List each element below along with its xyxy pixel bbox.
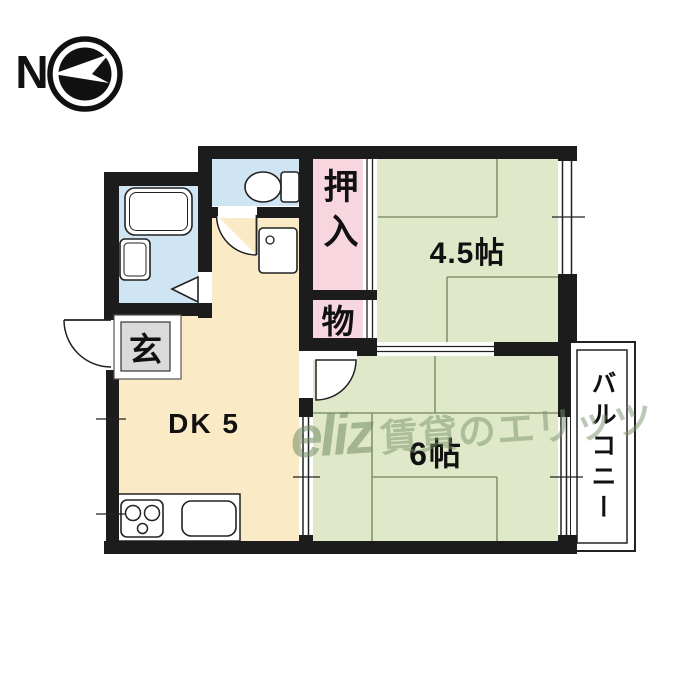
room-label-balcony: バルコニー [577,351,627,543]
floor-plan-drawing [0,0,700,700]
stove-burner [138,524,148,534]
fusuma-45-6 [377,342,494,356]
window-dk-6 [299,417,313,535]
wall-divider-mid [299,398,313,417]
wall-right-mid [558,274,577,342]
room-label-45jo: 4.5帖 [377,232,558,268]
fusuma-oshiire [363,159,377,290]
washbasin-faucet [266,236,274,244]
wall-toilet-bottom-right [257,207,299,218]
wall-top [202,146,577,159]
wall-left-upper [104,172,119,320]
fusuma-storage [363,300,377,338]
wall-bottom [104,541,577,554]
window-6-right [558,417,570,535]
wall-bath-right-lower [198,303,212,318]
toilet-tank [281,172,299,202]
kitchen-sink-icon [182,501,236,536]
room-label-genkan: 玄 [121,322,170,371]
room-label-storage: 物 [313,299,363,339]
bathtub-icon [125,188,192,235]
washbasin-icon [259,228,297,273]
wall-junction-block [357,338,377,356]
wall-divider-upper [299,146,313,351]
toilet-door-opening [218,207,257,218]
room-label-oshiire: 押入 [313,166,363,288]
compass [50,39,120,109]
wall-bath-bottom [104,303,212,316]
wall-right-bottom [558,535,577,554]
toilet-bowl-icon [245,172,281,202]
wall-right-mid2 [558,342,570,417]
compass-north-label: N [10,44,54,100]
stove-burner [126,506,141,521]
bath-door-opening [198,272,212,303]
wall-45-6 [494,342,560,356]
stove-burner [145,506,160,521]
wall-bath-right-upper [198,146,212,272]
wall-right-top [558,146,577,161]
wall-divider-bottom [299,535,313,554]
wall-bath-top [104,172,212,186]
room-label-dk: DK 5 [144,406,264,442]
room-label-6jo: 6帖 [336,433,536,471]
floor-plan-canvas: N 4.5帖 6帖 DK 5 押入 物 玄 バルコニー eliz 賃貸のエリッツ [0,0,700,700]
wall-left-lower [106,370,119,554]
washitsu-6-door-opening2 [299,351,313,398]
